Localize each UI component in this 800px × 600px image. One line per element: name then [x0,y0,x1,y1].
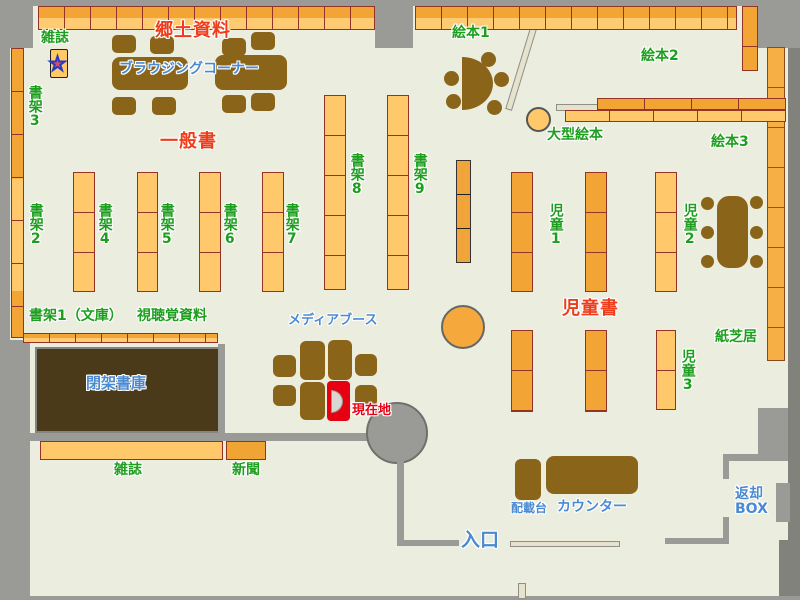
shelf-children-upper-1 [511,172,533,292]
shelf-picturebook-row-bottom [565,110,786,122]
label-newspapers: 新聞 [232,463,260,478]
returnbox-wall-notch [776,483,790,522]
label-media-booth: メディアブース [288,314,377,328]
label-picture-books1: 絵本1 [452,26,490,41]
stool [750,196,763,209]
shelf-4 [73,172,95,292]
label-shelf9: 書架9 [412,153,427,197]
magazine-display-tag: ★ [50,49,68,78]
label-counter: カウンター [557,500,627,515]
shelf-children-upper-2 [585,172,607,292]
label-return-box: 返却BOX [735,487,771,516]
pillar-top [375,0,413,48]
chair [152,97,176,115]
entrance-door-post [518,583,526,599]
shelf-children-upper-3 [655,172,677,292]
stool [487,100,502,115]
media-booth-desk [273,355,296,377]
label-local-materials: 郷土資料 [155,22,231,41]
stool [494,72,509,87]
round-table [441,305,485,349]
label-shelf8: 書架8 [349,153,364,197]
diagonal-partition [505,18,539,111]
shelf-right-wall-column [767,47,785,361]
children-table [717,196,748,268]
shelf-children-lower-1 [511,330,533,412]
returnbox-wall-bottom-stub [723,517,729,544]
star-icon: ★ [49,53,66,75]
shelf-row-above-closed-stacks [23,333,218,343]
entrance-wall-horizontal [397,540,459,546]
wall-right-lower [779,540,800,596]
label-shelf6: 書架6 [222,203,237,247]
current-location-seat-icon [331,390,343,413]
wall-under-closed-stacks [0,433,372,441]
stool [701,255,714,268]
closed-stacks-side-wall [218,344,225,440]
chair [251,32,275,50]
media-booth-desk [328,340,352,380]
label-children1: 児童1 [548,203,563,247]
entrance-wall-vertical [397,445,404,543]
label-children-books: 児童書 [562,300,619,319]
wall-top-right-block [758,0,800,48]
shelf-top-corner [742,6,758,71]
stool [446,94,461,109]
wall-left-lower [0,340,30,596]
label-entrance: 入口 [461,531,499,551]
shelf-8 [324,95,346,290]
label-shelf4: 書架4 [97,203,112,247]
wall-bottom-strip [0,596,800,600]
returnbox-wall-stub [723,454,729,479]
wall-top-left-block [0,0,33,48]
returnbox-wall-bottom [665,538,728,544]
label-picture-books3: 絵本3 [711,135,749,150]
label-children2: 児童2 [682,203,697,247]
stool [750,255,763,268]
label-shelf2: 書架2 [28,203,43,247]
label-large-picture-books: 大型絵本 [547,128,603,143]
media-booth-desk [355,354,377,376]
label-magazines-bottom: 雑誌 [114,463,142,478]
label-kamishibai: 紙芝居 [715,330,757,345]
returnbox-wall-block [758,408,788,455]
entrance-door [510,541,620,547]
stool [481,52,496,67]
label-picture-books2: 絵本2 [641,49,679,64]
media-booth-desk [300,341,325,380]
chair [251,93,275,111]
current-location-marker [327,381,350,421]
shelf-small-center [456,160,471,263]
loading-table-desk [515,459,541,500]
label-closed-stacks: 閉架書庫 [86,376,146,392]
returnbox-wall-top [723,454,788,461]
shelf-left-wall-column [11,48,24,338]
chair [112,35,136,53]
shelf-picturebook-row-top [597,98,786,110]
label-audio-visual: 視聴覚資料 [137,309,207,324]
label-loading-table: 配載台 [511,502,547,515]
shelf-newspapers [226,441,266,460]
shelf-magazines [40,441,223,460]
shelf-5 [137,172,158,292]
label-children3: 児童3 [680,349,695,393]
stool [701,197,714,210]
chair [112,97,136,115]
label-general-books: 一般書 [160,133,217,152]
counter-desk [546,456,638,494]
stool [701,226,714,239]
media-booth-desk [273,385,296,406]
label-browsing-corner: ブラウジングコーナー [119,62,259,77]
shelf-children-lower-2 [585,330,607,412]
shelf-6 [199,172,221,292]
stool [444,71,459,86]
chair [222,95,246,113]
label-shelf1-bunko: 書架1（文庫） [29,309,123,324]
label-current-location: 現在地 [352,404,391,418]
shelf-children-lower-3 [656,330,676,410]
stool [750,226,763,239]
library-floor-map: ★ 雑誌 郷土資料 ブラウジングコーナー 一般書 書架3 書架2 書架4 書架5… [0,0,800,600]
media-booth-desk [300,382,325,420]
label-shelf7: 書架7 [284,203,299,247]
shelf-7 [262,172,284,292]
label-shelf3: 書架3 [27,85,42,129]
label-magazines-top: 雑誌 [41,31,69,46]
shelf-9 [387,95,409,290]
label-shelf5: 書架5 [159,203,174,247]
